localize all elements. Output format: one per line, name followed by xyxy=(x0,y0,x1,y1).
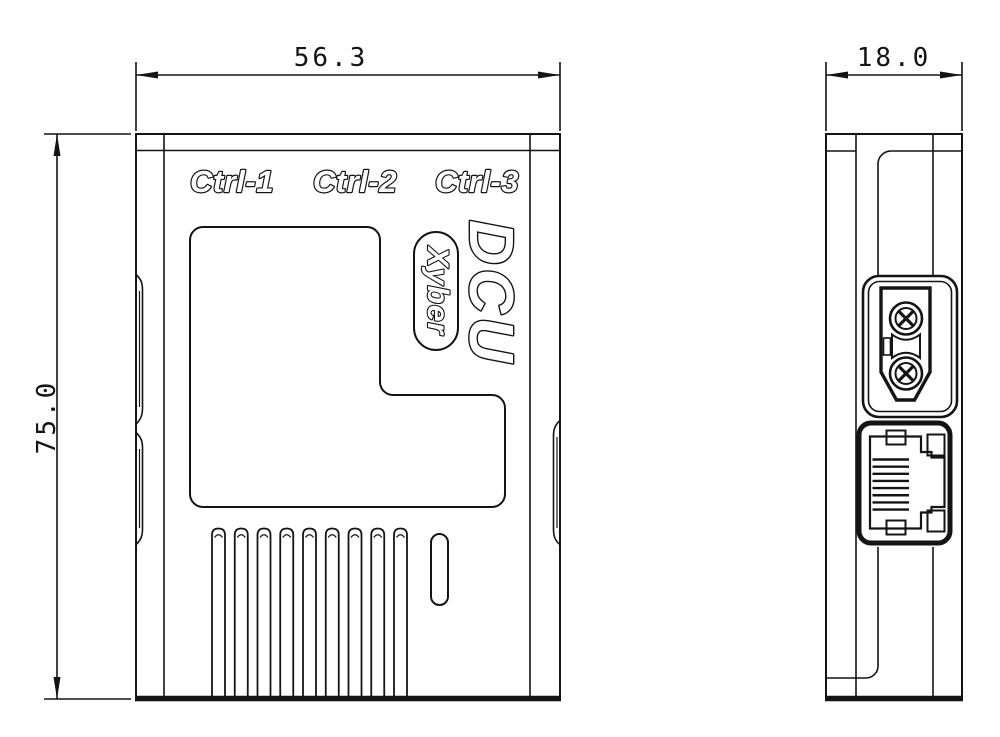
front-height-value: 75.0 xyxy=(32,380,62,455)
terminal-split-slots xyxy=(898,311,914,327)
ctrl-2-label: Ctrl-2 xyxy=(313,164,397,199)
rear-panel-bottom xyxy=(826,547,878,678)
vent-fin-cap-line xyxy=(283,535,291,538)
vent-fin xyxy=(212,529,225,698)
ctrl-labels: Ctrl-1 Ctrl-2 Ctrl-3 xyxy=(190,164,519,199)
vent-fin-cap-line xyxy=(215,535,223,538)
power-terminal xyxy=(890,303,922,335)
ctrl-3-label: Ctrl-3 xyxy=(435,164,519,199)
side-view: 18.0 xyxy=(825,43,963,699)
arrowhead-right xyxy=(538,72,560,79)
drawing-canvas: 56.3 75.0 Ct xyxy=(0,0,1000,737)
rj45-cavity xyxy=(870,437,945,529)
ethernet-port xyxy=(859,423,950,543)
vent-fin-cap-line xyxy=(306,535,314,538)
technical-drawing: 56.3 75.0 Ct xyxy=(0,0,1000,737)
vent-fin-cap-line xyxy=(397,535,405,538)
front-width-value: 56.3 xyxy=(294,43,369,73)
vent-fin xyxy=(303,529,316,698)
arrowhead-top xyxy=(54,134,61,156)
rear-panel-top xyxy=(878,151,962,276)
vent-fin xyxy=(235,529,248,698)
power-terminal xyxy=(890,358,922,390)
front-width-dimension: 56.3 xyxy=(136,43,560,131)
vent-fins xyxy=(212,529,407,698)
vent-fin-cap-line xyxy=(237,535,245,538)
front-height-dimension: 75.0 xyxy=(32,134,131,699)
xyber-badge: Xyber xyxy=(414,232,458,350)
polarity-key-bowtie xyxy=(892,335,920,359)
arrowhead-left xyxy=(826,72,848,79)
arrowhead-bottom xyxy=(54,677,61,699)
terminal-split-slots xyxy=(898,366,914,382)
ethernet-pins xyxy=(873,460,910,510)
vent-fin xyxy=(326,529,339,698)
vent-fin-cap-line xyxy=(328,535,336,538)
dcu-logo-text: DCU xyxy=(456,220,525,366)
vent-fin-cap-line xyxy=(351,535,359,538)
polarity-key-bar xyxy=(884,338,891,355)
vent-fin xyxy=(258,529,271,698)
power-connector xyxy=(863,276,957,417)
vent-fin-cap-line xyxy=(260,535,268,538)
rj45-latch-window-bottom xyxy=(928,511,945,532)
brand-name-text: Xyber xyxy=(421,245,454,337)
vent-fin xyxy=(371,529,384,698)
front-view: 56.3 75.0 Ct xyxy=(32,43,561,699)
arrowhead-right xyxy=(940,72,962,79)
vent-fin-cap-line xyxy=(374,535,382,538)
vent-fin xyxy=(349,529,362,698)
side-depth-dimension: 18.0 xyxy=(826,43,962,131)
vent-fin xyxy=(280,529,293,698)
arrowhead-left xyxy=(136,72,158,79)
vent-fin xyxy=(394,529,407,698)
side-depth-value: 18.0 xyxy=(857,43,932,73)
led-slot xyxy=(431,534,448,605)
ctrl-1-label: Ctrl-1 xyxy=(190,164,274,199)
